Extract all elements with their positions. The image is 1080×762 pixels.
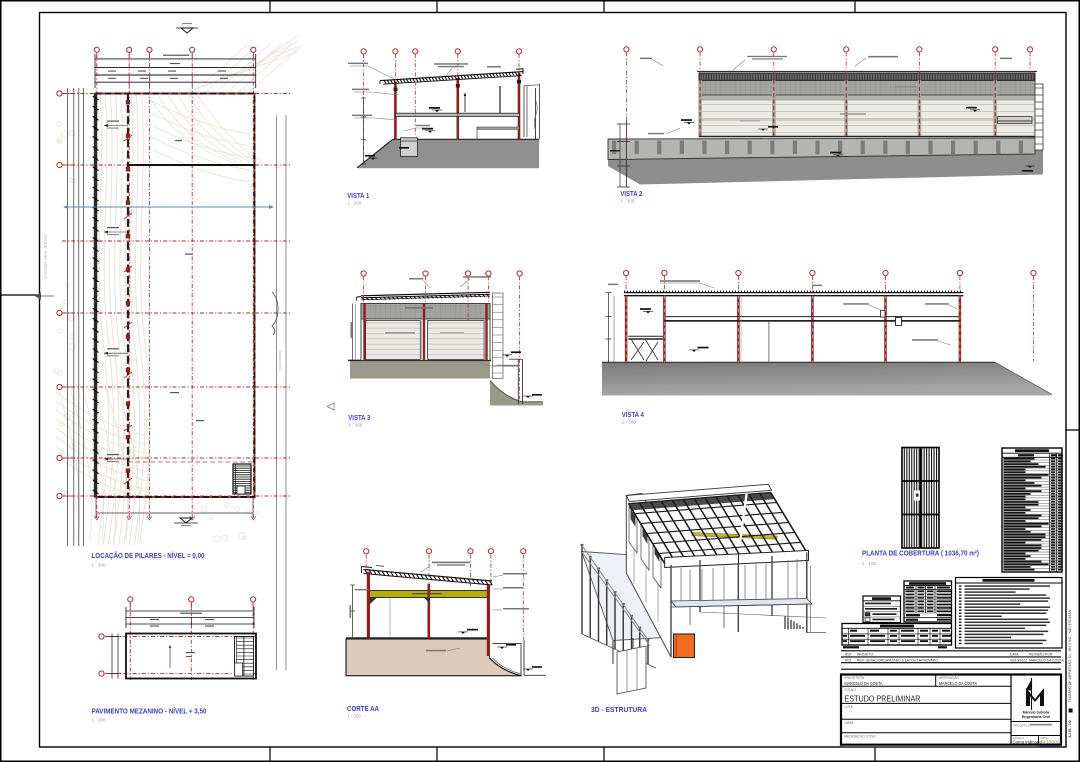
svg-text:MEDIDAS NO LOCAL: MEDIDAS NO LOCAL	[845, 735, 877, 739]
svg-text:MARCELO DA COSTA: MARCELO DA COSTA	[845, 681, 884, 686]
svg-text:1 : 100: 1 : 100	[862, 561, 876, 566]
svg-text:CORTE AA: CORTE AA	[347, 704, 379, 713]
svg-text:LOCAÇÃO DE PILARES - NÍVEL = 0: LOCAÇÃO DE PILARES - NÍVEL = 0,00	[92, 551, 205, 560]
svg-text:Como indicado: Como indicado	[1013, 740, 1043, 745]
svg-text:3D - ESTRUTURA: 3D - ESTRUTURA	[591, 705, 647, 714]
svg-text:1 : 300: 1 : 300	[622, 420, 636, 425]
svg-text:R00: R00	[845, 652, 851, 656]
svg-text:PAVIMENTO MEZANINO - NÍVEL + 3: PAVIMENTO MEZANINO - NÍVEL + 3,50	[92, 707, 207, 716]
svg-text:OBRA: OBRA	[845, 721, 855, 725]
svg-text:VISTA 3: VISTA 3	[348, 413, 370, 422]
svg-text:LOTE: LOTE	[845, 705, 853, 709]
svg-text:1 : 300: 1 : 300	[92, 718, 106, 723]
svg-text:1 : 300: 1 : 300	[92, 563, 106, 568]
svg-text:VISTA 4: VISTA 4	[622, 410, 645, 419]
svg-text:1 : 300: 1 : 300	[348, 423, 362, 428]
svg-text:03/10/2022: 03/10/2022	[1041, 740, 1063, 745]
svg-text:AVENIDA NEW JERSEY: AVENIDA NEW JERSEY	[43, 233, 48, 279]
svg-text:1 : 300: 1 : 300	[347, 201, 361, 206]
svg-text:REV. GERAL/ORGANIZADO E LAYOUT: REV. GERAL/ORGANIZADO E LAYOUT APROVADO	[857, 658, 938, 662]
svg-text:PROJETO: PROJETO	[857, 652, 873, 656]
svg-text:03/10/2022: 03/10/2022	[1010, 658, 1027, 662]
svg-text:PROJETO Nº: PROJETO Nº	[1014, 724, 1033, 728]
svg-text:VISTA 2: VISTA 2	[620, 189, 642, 198]
svg-text:1 : 300: 1 : 300	[347, 714, 361, 719]
svg-text:A-101 - 1/2: A-101 - 1/2	[1068, 720, 1072, 738]
svg-text:R01: R01	[845, 658, 851, 662]
svg-text:ESTUDO PRELIMINAR: ESTUDO PRELIMINAR	[845, 694, 921, 703]
svg-text:APROVAÇÃO: APROVAÇÃO	[939, 675, 959, 680]
svg-text:DECLIVIDADE: DECLIVIDADE	[278, 350, 282, 370]
svg-text:TAMANHO DE IMPRESSÃO: A1 - 594: TAMANHO DE IMPRESSÃO: A1 - 594 X 841 - N…	[1067, 609, 1072, 702]
svg-text:TÍTULO: TÍTULO	[845, 688, 857, 692]
svg-text:VISTA 1: VISTA 1	[347, 191, 370, 200]
svg-text:Engenharia Civil: Engenharia Civil	[1022, 715, 1050, 719]
svg-text:PLANTA DE COBERTURA ( 1036,70: PLANTA DE COBERTURA ( 1036,70 m²)	[862, 549, 979, 558]
svg-text:REVISÃO POR: REVISÃO POR	[1029, 651, 1053, 656]
svg-text:MARCELO DA COSTA: MARCELO DA COSTA	[939, 681, 978, 686]
svg-text:MARCELO DA COSTA: MARCELO DA COSTA	[1029, 658, 1064, 662]
svg-text:DATA: DATA	[1010, 652, 1019, 656]
svg-text:1 : 300: 1 : 300	[620, 199, 634, 204]
svg-text:PROJETISTA: PROJETISTA	[845, 676, 865, 680]
